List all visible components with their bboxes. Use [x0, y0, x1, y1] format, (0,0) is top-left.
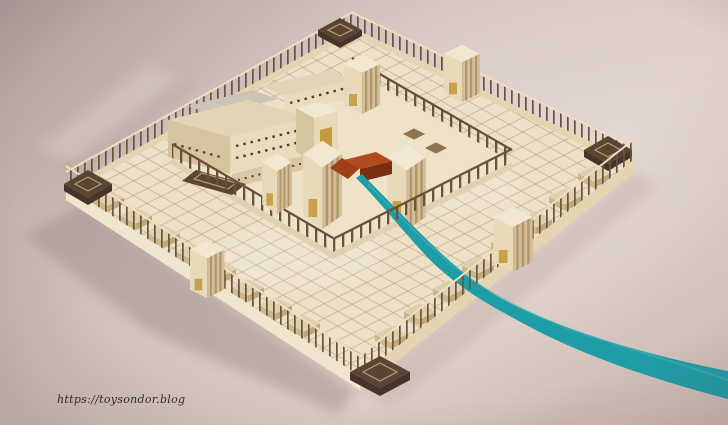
watermark-url: https://toysondor.blog: [57, 393, 185, 406]
vignette: [0, 0, 728, 425]
temple-model-illustration: https://toysondor.blog: [0, 0, 728, 425]
rendered-scene: https://toysondor.blog: [0, 0, 728, 425]
